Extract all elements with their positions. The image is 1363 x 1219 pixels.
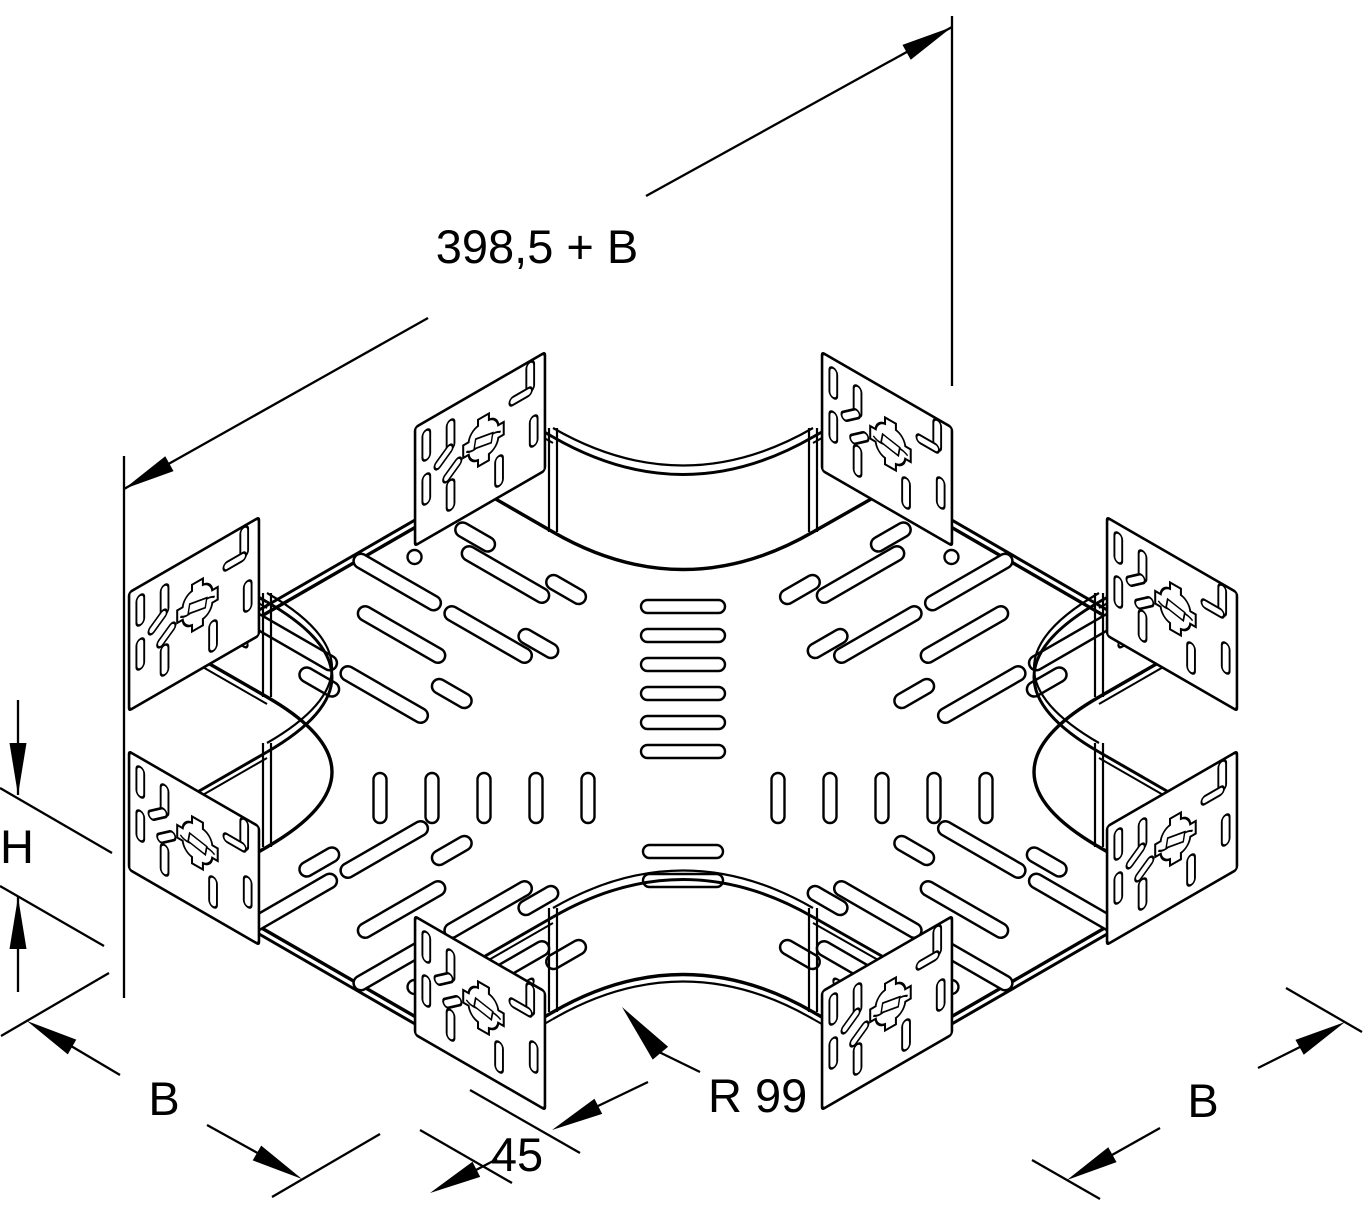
dimension-width-left-label: B xyxy=(148,1072,179,1125)
dimension-overall-label: 398,5 + B xyxy=(436,220,639,273)
technical-drawing: 398,5 + B H B 45 R 99 B xyxy=(0,0,1363,1219)
dimension-height-label: H xyxy=(0,820,34,873)
dimension-end-straight-label: 45 xyxy=(491,1128,543,1181)
dimension-radius-label: R 99 xyxy=(708,1069,807,1122)
dimension-width-right-label: B xyxy=(1187,1074,1218,1127)
drawing-page: 398,5 + B H B 45 R 99 B xyxy=(0,0,1363,1219)
cable-tray-cross-body xyxy=(0,16,1362,1199)
